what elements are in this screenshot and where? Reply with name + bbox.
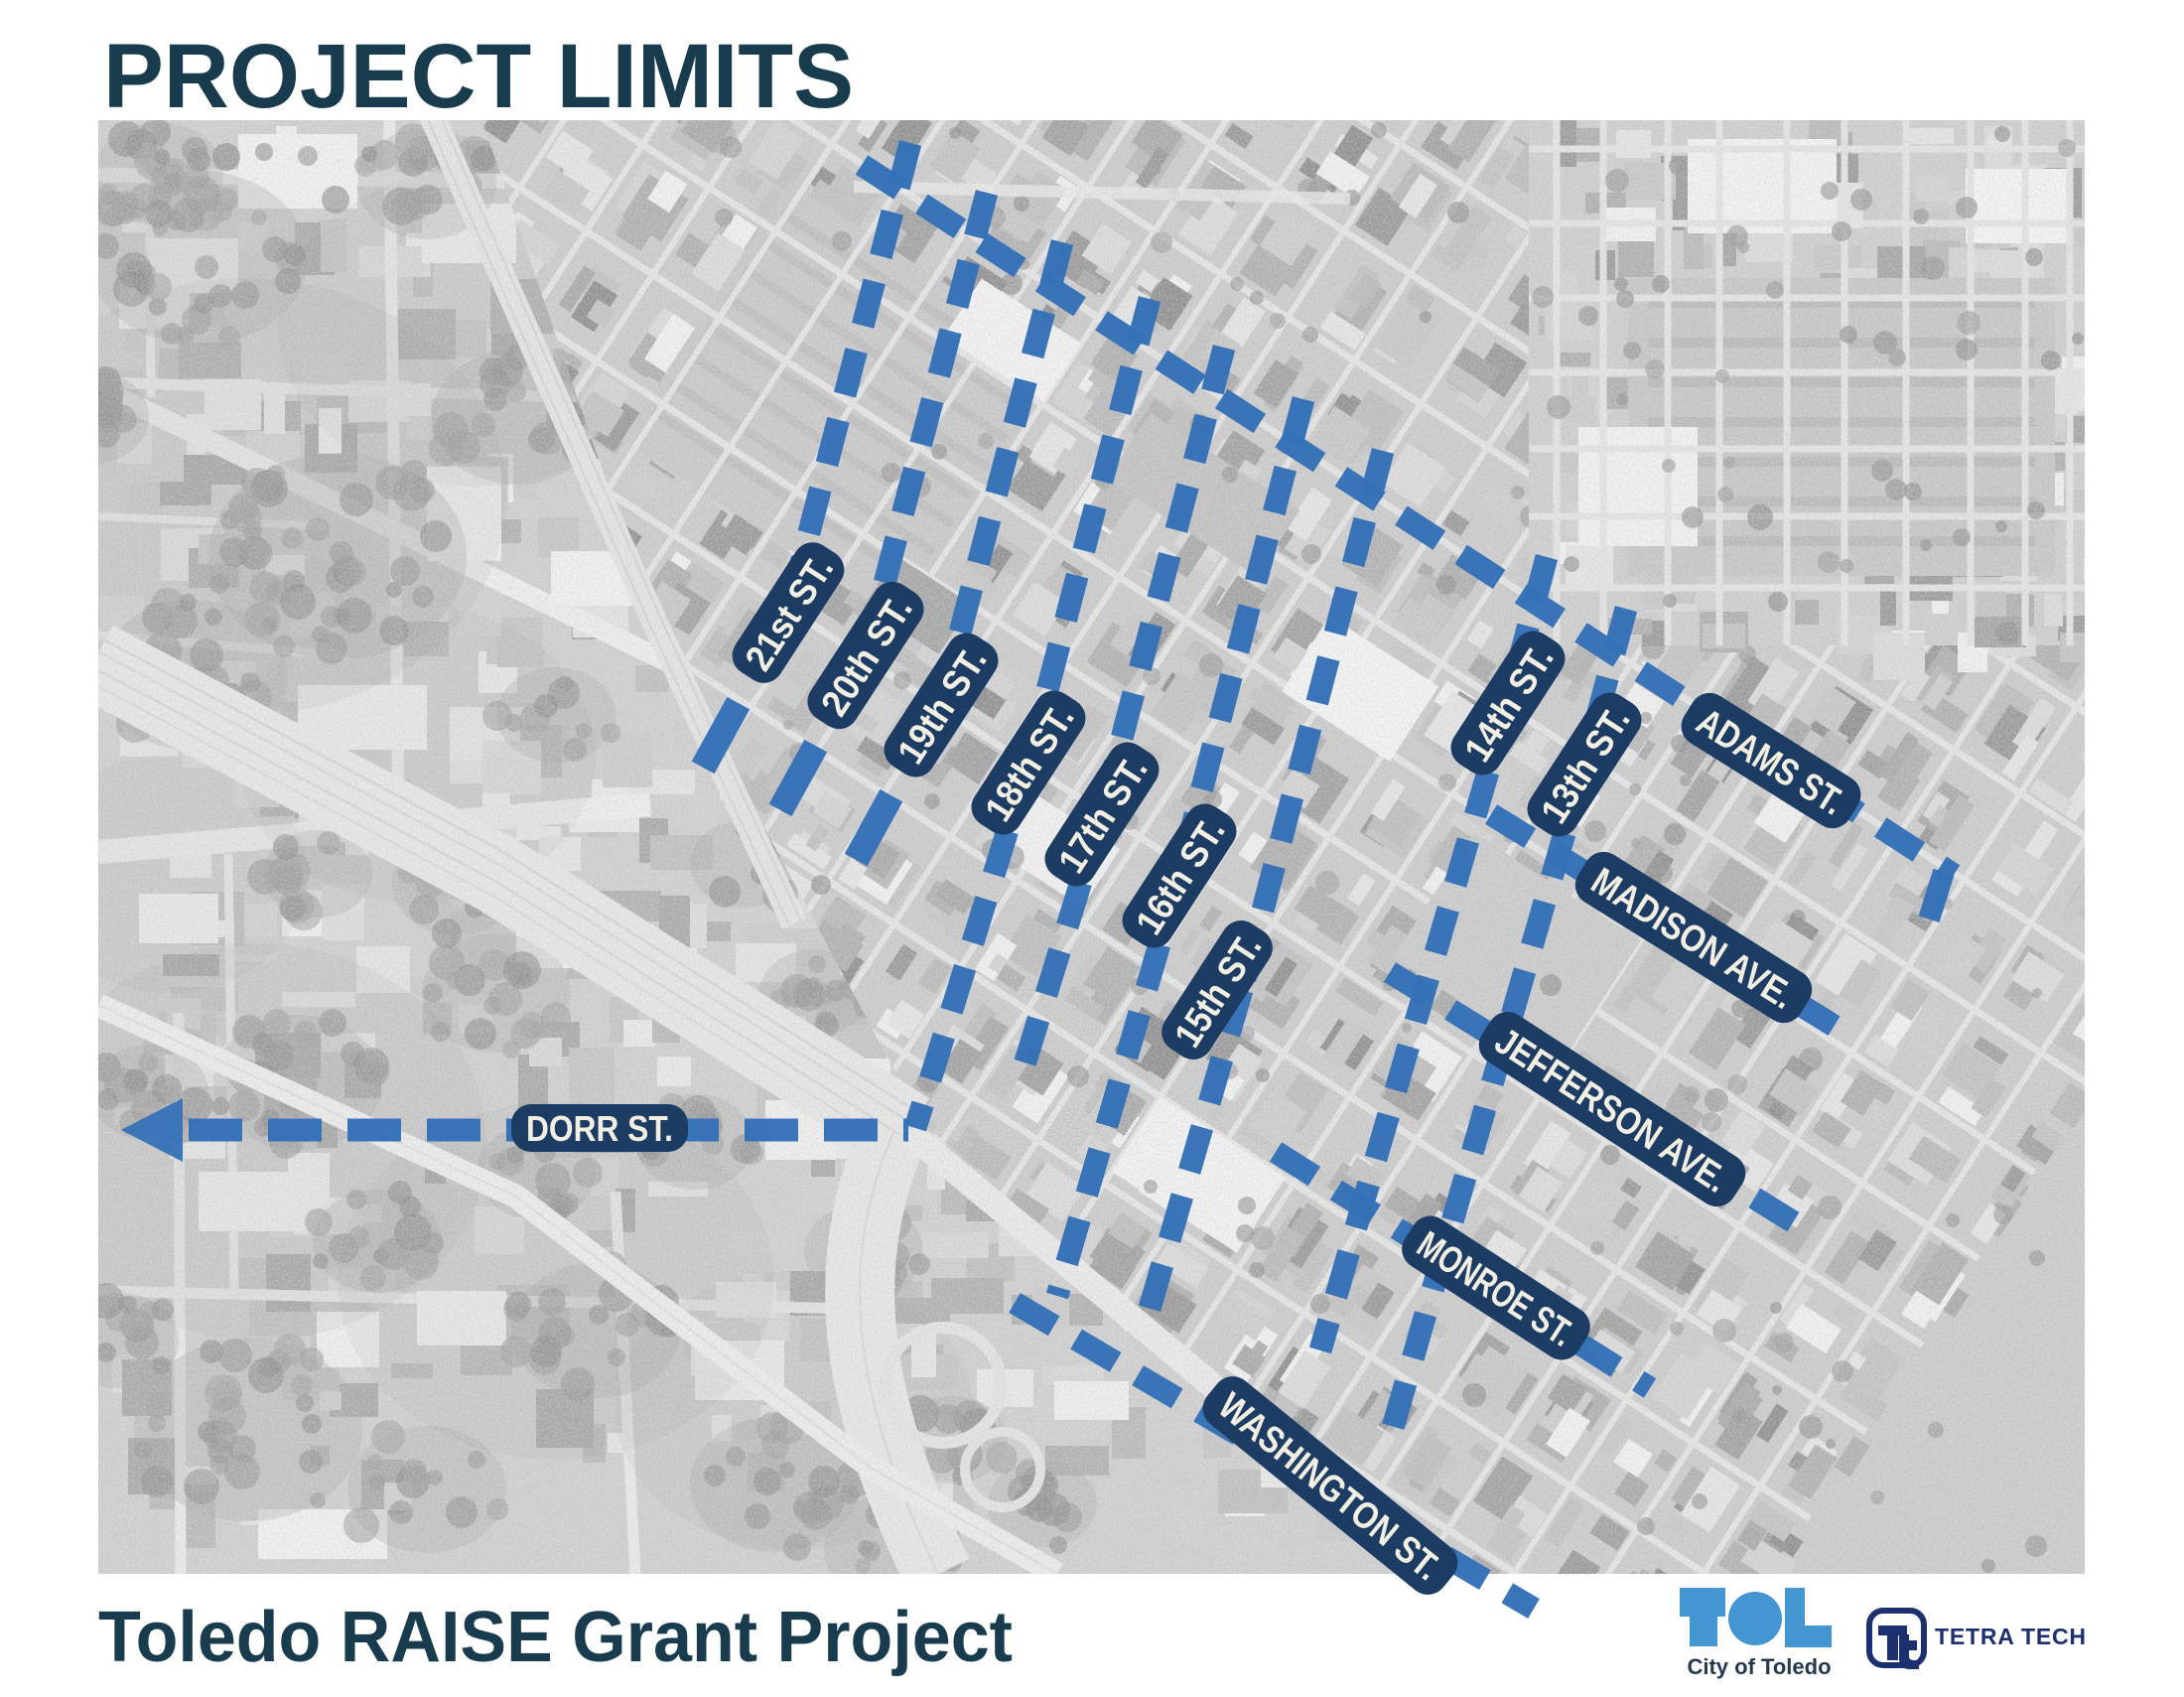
svg-text:PROJECT LIMITS: PROJECT LIMITS (103, 26, 854, 127)
